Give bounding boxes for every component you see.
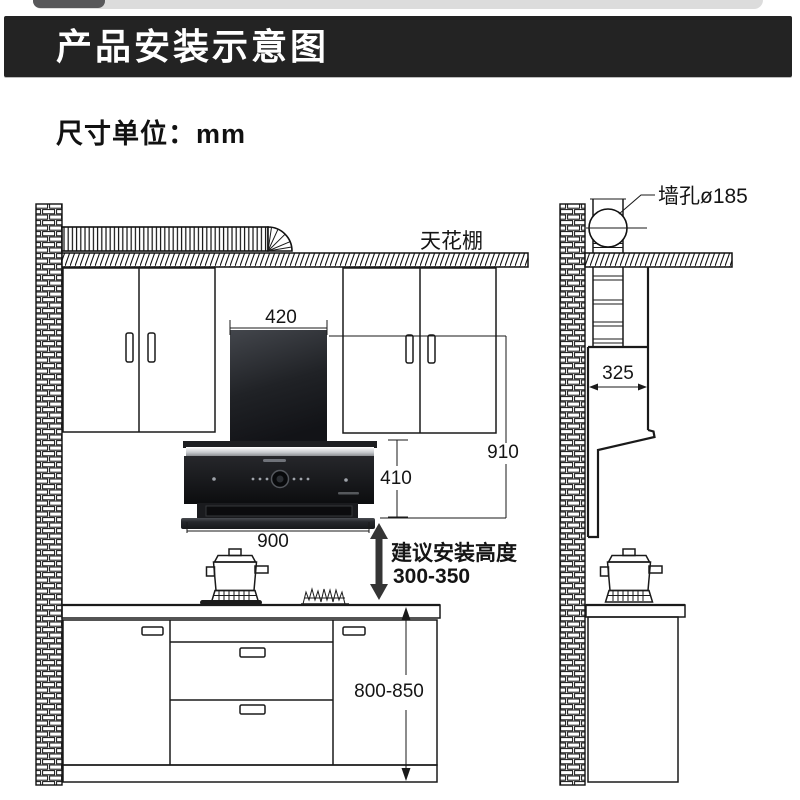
hood-top-edge: [183, 441, 377, 448]
dim-900-text: 900: [257, 531, 289, 552]
hood-glass-rim: [186, 447, 374, 456]
hood-knob-center: [277, 476, 284, 483]
counter-front: [62, 605, 440, 618]
dim-410-text: 410: [380, 468, 412, 489]
install-height-note: 建议安装高度 300-350: [370, 523, 517, 600]
hood-logo: [263, 459, 286, 462]
dim-body-height: 410: [380, 440, 412, 517]
install-height-label: 建议安装高度: [391, 541, 517, 565]
installation-diagram: 天花棚: [0, 0, 800, 800]
flex-duct-horizontal: [62, 227, 292, 251]
wall-hole-label: 墙孔ø185: [658, 185, 748, 208]
pot-side-view: [601, 549, 663, 602]
hood-chimney: [230, 330, 327, 447]
dim-910-text: 910: [487, 442, 519, 463]
dim-side-depth: 325: [589, 363, 647, 391]
gas-burner-grate: [301, 589, 349, 604]
page: { "banner": { "title": "产品安装示意图", "bg": …: [0, 0, 800, 800]
left-brick-wall: [36, 204, 62, 785]
hood-base: [181, 518, 375, 529]
install-height-range: 300-350: [393, 565, 470, 588]
ceiling-label: 天花棚: [420, 230, 483, 253]
ceiling-front: [62, 253, 528, 267]
front-view: 天花棚: [36, 204, 528, 785]
cabinet-plinth: [63, 765, 437, 782]
hood-model-text: [338, 492, 359, 495]
wall-hole: 墙孔ø185: [586, 185, 748, 247]
hood-side-profile: [588, 267, 655, 537]
dim-420-text: 420: [265, 307, 297, 328]
side-view: 墙孔ø185 325: [560, 185, 748, 785]
range-hood-front: [181, 330, 377, 529]
dim-325-text: 325: [602, 363, 634, 384]
dim-800-850-text: 800-850: [354, 681, 424, 702]
upper-cabinet-left: [63, 268, 215, 432]
base-cabinet-side: [588, 617, 678, 782]
right-brick-wall: [560, 204, 585, 785]
hood-filter-slot: [206, 506, 352, 516]
ceiling-side: [585, 253, 732, 267]
upper-cabinet-right: [343, 268, 496, 433]
counter-side: [586, 605, 685, 617]
pot-front-view: [207, 549, 269, 602]
